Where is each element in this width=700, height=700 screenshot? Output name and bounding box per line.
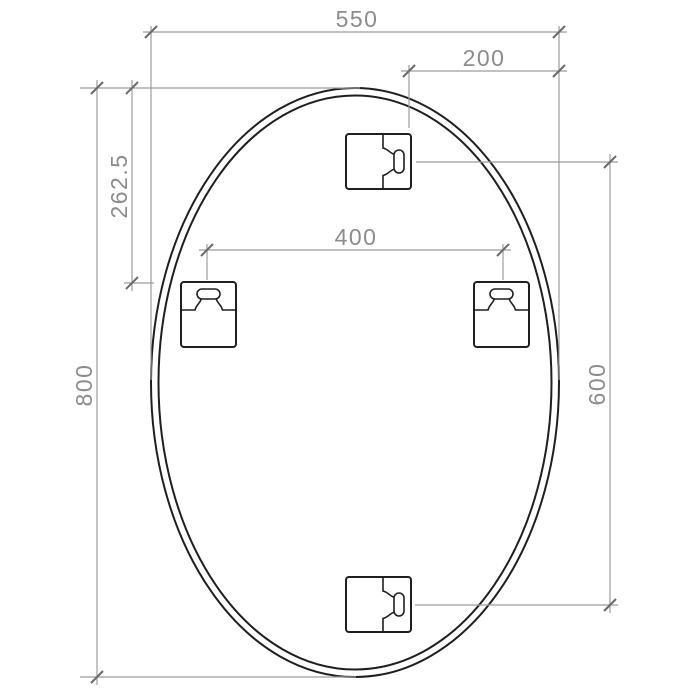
technical-drawing-canvas: 550 200 400 262.5 800 600: [0, 0, 700, 700]
dimension-overall-width: 550: [143, 6, 567, 38]
dimension-label-vertical-bracket-spacing: 600: [584, 363, 610, 406]
dimension-side-bracket-from-top: 262.5: [106, 80, 138, 291]
dimension-vertical-bracket-spacing: 600: [584, 154, 616, 613]
mounting-bracket-right: [474, 282, 529, 347]
dimension-top-bracket-offset: 200: [401, 45, 567, 77]
mounting-bracket-top: [346, 134, 411, 189]
mounting-bracket-bottom: [346, 577, 411, 632]
oval-mirror-dimension-drawing: 550 200 400 262.5 800 600: [0, 0, 700, 700]
dimension-label-side-bracket-spacing: 400: [335, 224, 378, 250]
dimension-label-overall-width: 550: [336, 6, 379, 32]
dimension-label-side-bracket-from-top: 262.5: [106, 153, 132, 218]
dimension-overall-height: 800: [71, 80, 103, 685]
dimension-side-bracket-spacing: 400: [199, 224, 511, 256]
mounting-bracket-left: [181, 282, 236, 347]
dimension-label-top-bracket-offset: 200: [463, 45, 506, 71]
dimension-label-overall-height: 800: [71, 364, 97, 407]
